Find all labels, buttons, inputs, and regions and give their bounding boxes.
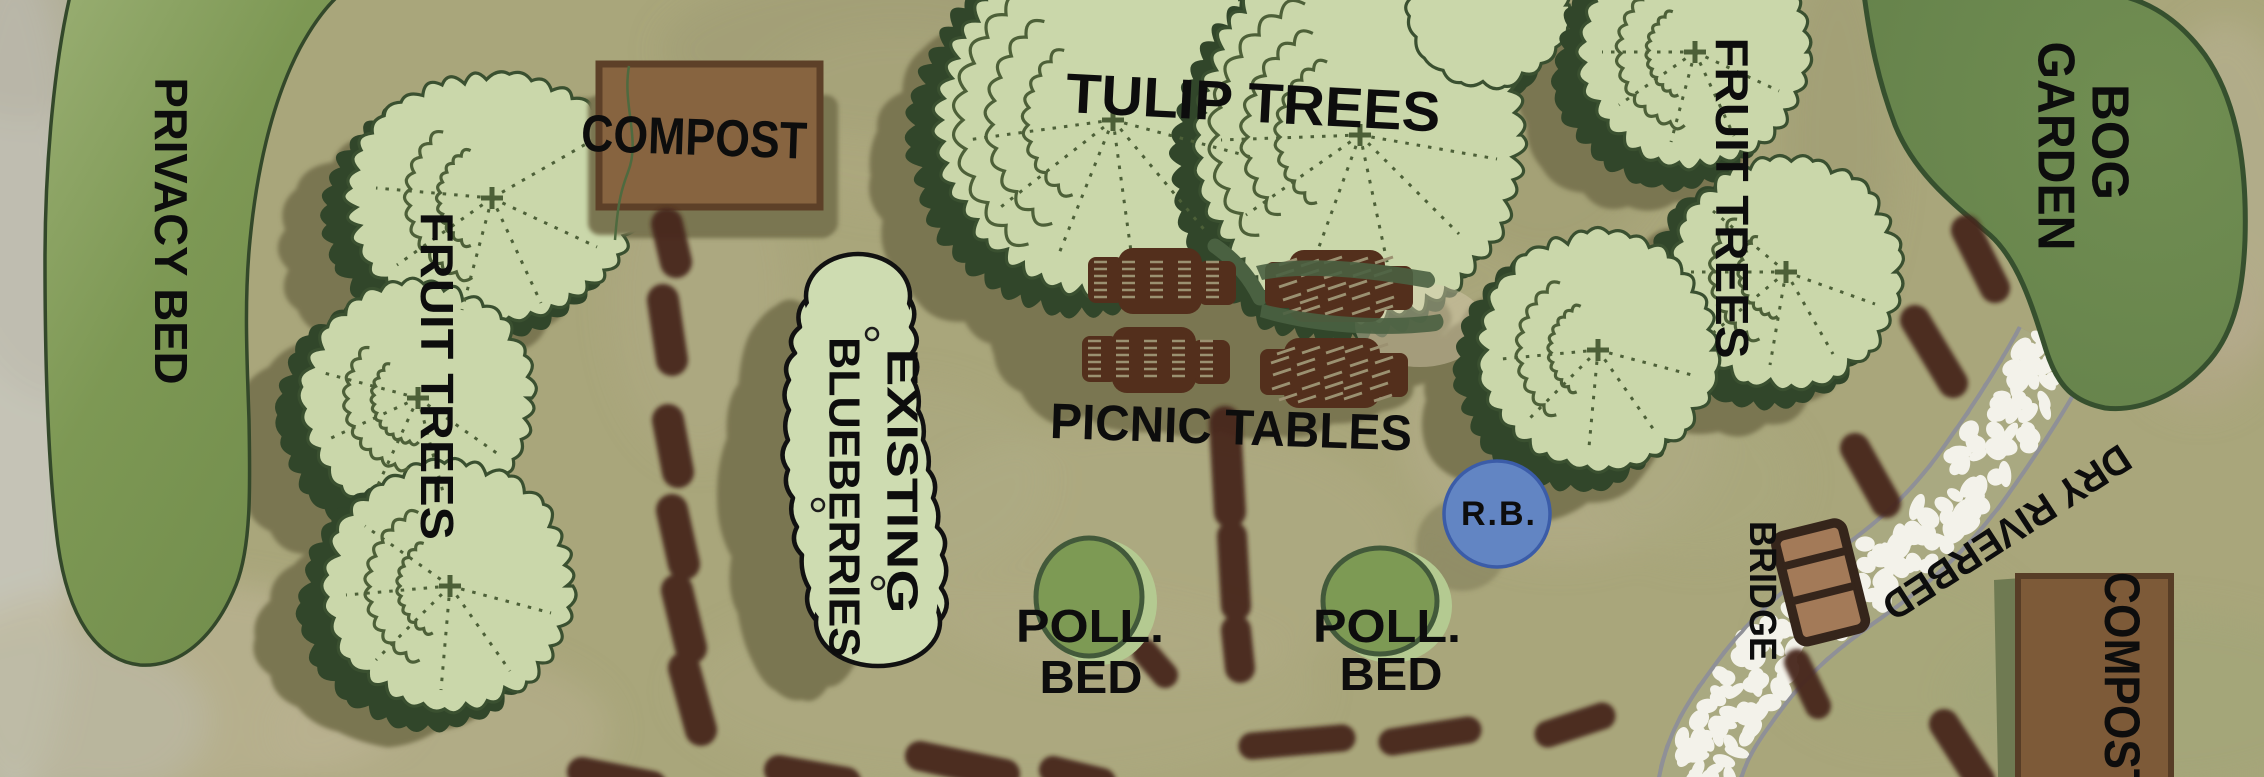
svg-text:R.B.: R.B. (1461, 495, 1537, 533)
svg-text:BED: BED (1040, 651, 1143, 703)
svg-text:EXISTING: EXISTING (877, 349, 926, 614)
svg-text:GARDEN: GARDEN (2026, 42, 2084, 251)
svg-text:COMPOST: COMPOST (2094, 572, 2150, 777)
svg-text:BED: BED (1340, 648, 1443, 700)
svg-text:FRUIT TREES: FRUIT TREES (1706, 38, 1758, 359)
svg-text:BRIDGE: BRIDGE (1741, 521, 1783, 661)
svg-text:BOG: BOG (2080, 84, 2138, 200)
svg-text:FRUIT TREES: FRUIT TREES (411, 212, 463, 540)
svg-text:BLUEBERRIES: BLUEBERRIES (819, 337, 868, 657)
svg-text:POLL.: POLL. (1313, 600, 1461, 652)
svg-text:POLL.: POLL. (1016, 600, 1164, 652)
svg-text:PRIVACY BED: PRIVACY BED (145, 78, 197, 385)
svg-text:COMPOST: COMPOST (580, 105, 808, 171)
